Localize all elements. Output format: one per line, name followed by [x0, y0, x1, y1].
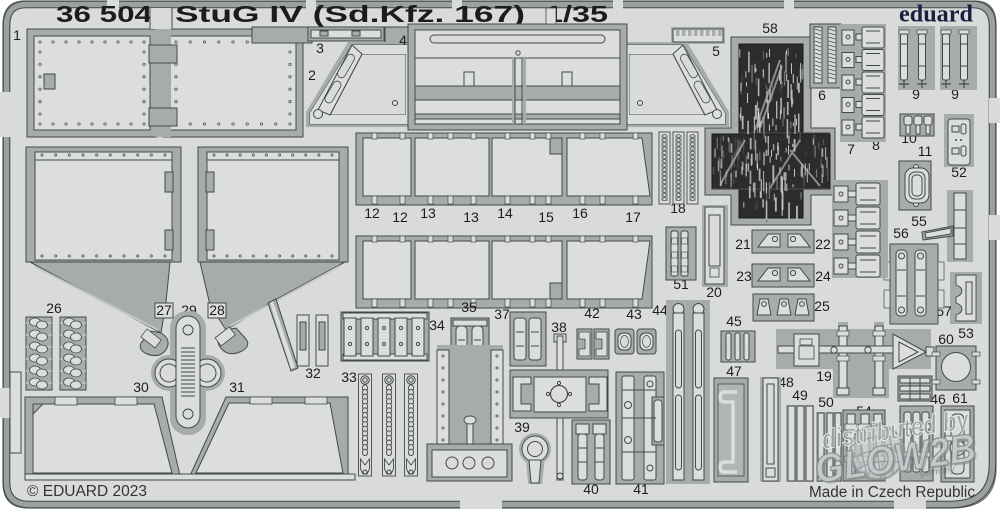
svg-text:58: 58	[762, 20, 778, 36]
svg-text:12: 12	[392, 209, 408, 225]
svg-text:53: 53	[958, 325, 974, 341]
svg-text:28: 28	[209, 302, 225, 318]
svg-text:55: 55	[911, 213, 927, 229]
svg-text:49: 49	[792, 387, 808, 403]
svg-text:11: 11	[918, 143, 933, 159]
svg-text:22: 22	[815, 236, 831, 252]
svg-text:34: 34	[429, 317, 445, 333]
svg-text:3: 3	[316, 40, 324, 56]
svg-text:26: 26	[46, 300, 62, 316]
svg-text:27: 27	[156, 302, 172, 318]
svg-text:38: 38	[551, 319, 567, 335]
svg-text:23: 23	[736, 268, 752, 284]
svg-text:44: 44	[652, 302, 668, 318]
svg-text:30: 30	[133, 379, 149, 395]
svg-text:31: 31	[229, 379, 245, 395]
svg-text:32: 32	[305, 365, 321, 381]
svg-text:1: 1	[13, 27, 21, 43]
svg-text:19: 19	[816, 368, 832, 384]
svg-text:39: 39	[514, 419, 530, 435]
svg-text:60: 60	[938, 331, 954, 347]
svg-text:45: 45	[726, 313, 742, 329]
svg-text:15: 15	[538, 209, 554, 225]
svg-text:7: 7	[847, 141, 855, 157]
svg-text:17: 17	[625, 209, 641, 225]
svg-text:47: 47	[726, 363, 742, 379]
svg-text:37: 37	[494, 306, 510, 322]
svg-text:StuG IV (Sd.Kfz. 167): StuG IV (Sd.Kfz. 167)	[175, 1, 525, 27]
svg-text:13: 13	[463, 209, 479, 225]
svg-text:25: 25	[814, 298, 830, 314]
svg-text:21: 21	[735, 236, 751, 252]
svg-text:50: 50	[818, 394, 834, 410]
svg-text:6: 6	[818, 87, 826, 103]
svg-text:24: 24	[815, 268, 831, 284]
svg-text:61: 61	[952, 390, 968, 406]
svg-text:eduard: eduard	[899, 2, 974, 28]
svg-text:© EDUARD 2023: © EDUARD 2023	[27, 483, 147, 500]
svg-text:42: 42	[584, 305, 600, 321]
svg-text:13: 13	[420, 205, 436, 221]
svg-text:46: 46	[930, 391, 946, 407]
svg-text:36 504: 36 504	[56, 1, 152, 27]
svg-text:33: 33	[341, 369, 357, 385]
svg-text:16: 16	[572, 205, 588, 221]
svg-text:2: 2	[308, 67, 316, 83]
svg-text:43: 43	[626, 306, 642, 322]
svg-text:12: 12	[364, 205, 380, 221]
svg-text:4: 4	[399, 32, 407, 48]
svg-text:5: 5	[712, 43, 720, 59]
svg-text:35: 35	[461, 299, 477, 315]
svg-text:14: 14	[497, 205, 513, 221]
svg-text:56: 56	[893, 225, 909, 241]
